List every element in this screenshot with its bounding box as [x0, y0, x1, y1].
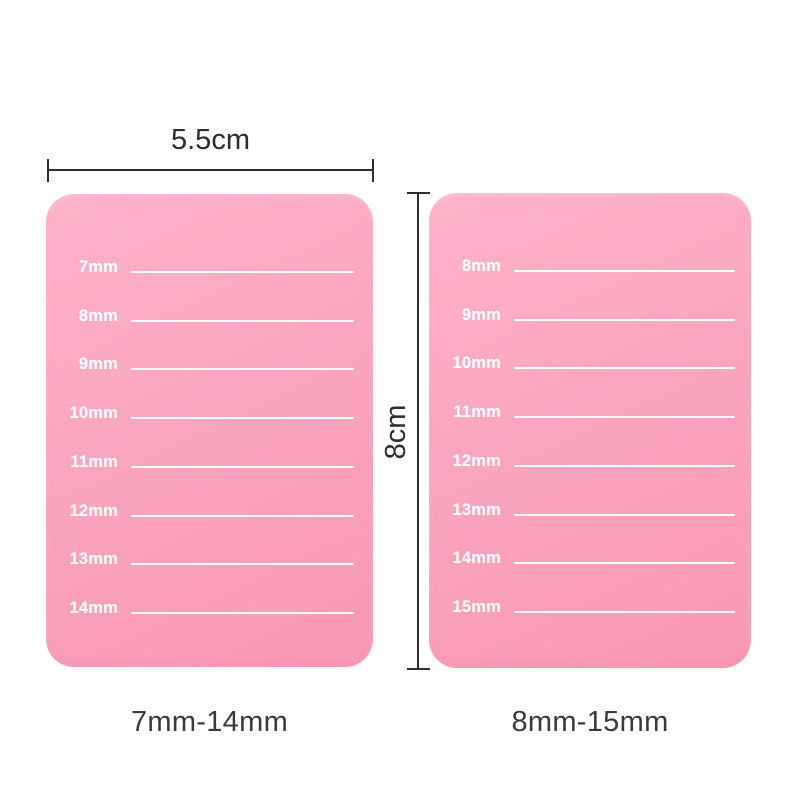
size-label: 9mm	[46, 355, 118, 374]
width-dimension-label: 5.5cm	[47, 124, 374, 157]
lash-pallet-left: 7mm 8mm 9mm 10mm 11mm 12mm 13mm 14mm	[46, 194, 373, 667]
product-dimension-diagram: 5.5cm 8cm 7mm 8mm 9mm 10mm 11mm	[0, 0, 800, 800]
lash-row: 13mm	[46, 547, 373, 571]
lash-strip-line	[514, 611, 735, 614]
lash-row: 11mm	[429, 400, 751, 424]
lash-row: 14mm	[429, 546, 751, 570]
size-label: 7mm	[46, 258, 118, 277]
size-label: 12mm	[429, 452, 501, 471]
height-ruler-line	[417, 192, 419, 670]
lash-strip-line	[131, 320, 354, 323]
size-label: 15mm	[429, 598, 501, 617]
lash-strip-line	[514, 514, 735, 517]
lash-strip-line	[514, 465, 735, 468]
lash-row: 9mm	[429, 303, 751, 327]
lash-row: 9mm	[46, 352, 373, 376]
lash-strip-line	[514, 319, 735, 322]
lash-row: 10mm	[46, 401, 373, 425]
lash-row: 8mm	[429, 254, 751, 278]
lash-row: 15mm	[429, 595, 751, 619]
lash-row: 11mm	[46, 450, 373, 474]
height-ruler-bottom-tick	[407, 668, 430, 670]
size-label: 11mm	[46, 453, 118, 472]
lash-strip-line	[514, 562, 735, 565]
width-ruler	[47, 159, 374, 182]
lash-strip-line	[514, 367, 735, 370]
height-ruler	[407, 192, 430, 670]
caption-right-range: 8mm-15mm	[429, 706, 751, 739]
lash-row: 12mm	[46, 499, 373, 523]
width-ruler-line	[47, 169, 374, 171]
size-label: 14mm	[46, 599, 118, 618]
size-label: 10mm	[46, 404, 118, 423]
lash-strip-line	[131, 612, 354, 615]
lash-strip-line	[131, 271, 354, 274]
lash-strip-line	[131, 368, 354, 371]
size-label: 9mm	[429, 306, 501, 325]
size-label: 13mm	[429, 501, 501, 520]
lash-strip-line	[514, 270, 735, 273]
lash-row: 12mm	[429, 449, 751, 473]
lash-row: 7mm	[46, 255, 373, 279]
lash-strip-line	[131, 466, 354, 469]
lash-strip-line	[131, 417, 354, 420]
size-label: 10mm	[429, 354, 501, 373]
lash-row: 8mm	[46, 304, 373, 328]
size-label: 8mm	[429, 257, 501, 276]
size-label: 14mm	[429, 549, 501, 568]
lash-strip-line	[514, 416, 735, 419]
size-label: 11mm	[429, 403, 501, 422]
size-label: 12mm	[46, 502, 118, 521]
lash-pallet-right: 8mm 9mm 10mm 11mm 12mm 13mm 14mm 15mm	[429, 193, 751, 668]
size-label: 8mm	[46, 307, 118, 326]
width-ruler-right-tick	[372, 159, 374, 182]
caption-left-range: 7mm-14mm	[46, 706, 373, 739]
lash-strip-line	[131, 515, 354, 518]
lash-strip-line	[131, 563, 354, 566]
size-label: 13mm	[46, 550, 118, 569]
lash-row: 10mm	[429, 351, 751, 375]
lash-row: 14mm	[46, 596, 373, 620]
lash-row: 13mm	[429, 498, 751, 522]
